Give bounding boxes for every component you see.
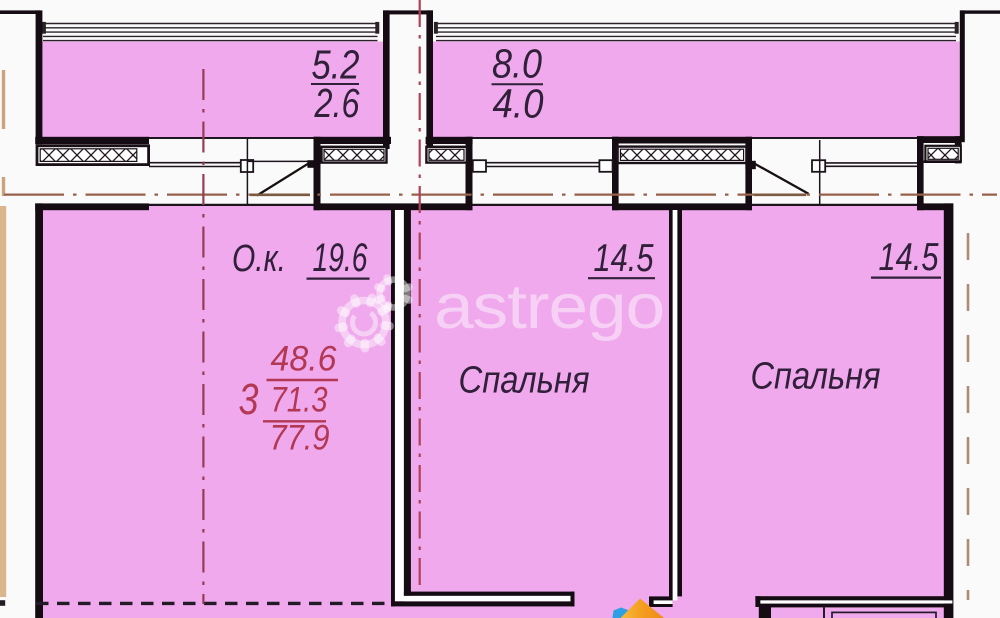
svg-text:71.3: 71.3 (271, 381, 328, 420)
svg-text:48.6: 48.6 (271, 340, 338, 379)
svg-text:astrego: astrego (434, 272, 664, 342)
svg-text:Спальня: Спальня (751, 356, 881, 398)
svg-text:О.к.: О.к. (232, 238, 286, 280)
svg-text:3: 3 (239, 375, 259, 424)
svg-text:19.6: 19.6 (313, 236, 369, 280)
svg-text:14.5: 14.5 (879, 236, 939, 279)
svg-text:77.9: 77.9 (270, 419, 330, 458)
svg-text:14.5: 14.5 (594, 237, 654, 280)
svg-text:Спальня: Спальня (459, 360, 590, 402)
svg-text:2.6: 2.6 (314, 80, 360, 126)
svg-text:4.0: 4.0 (493, 81, 544, 127)
